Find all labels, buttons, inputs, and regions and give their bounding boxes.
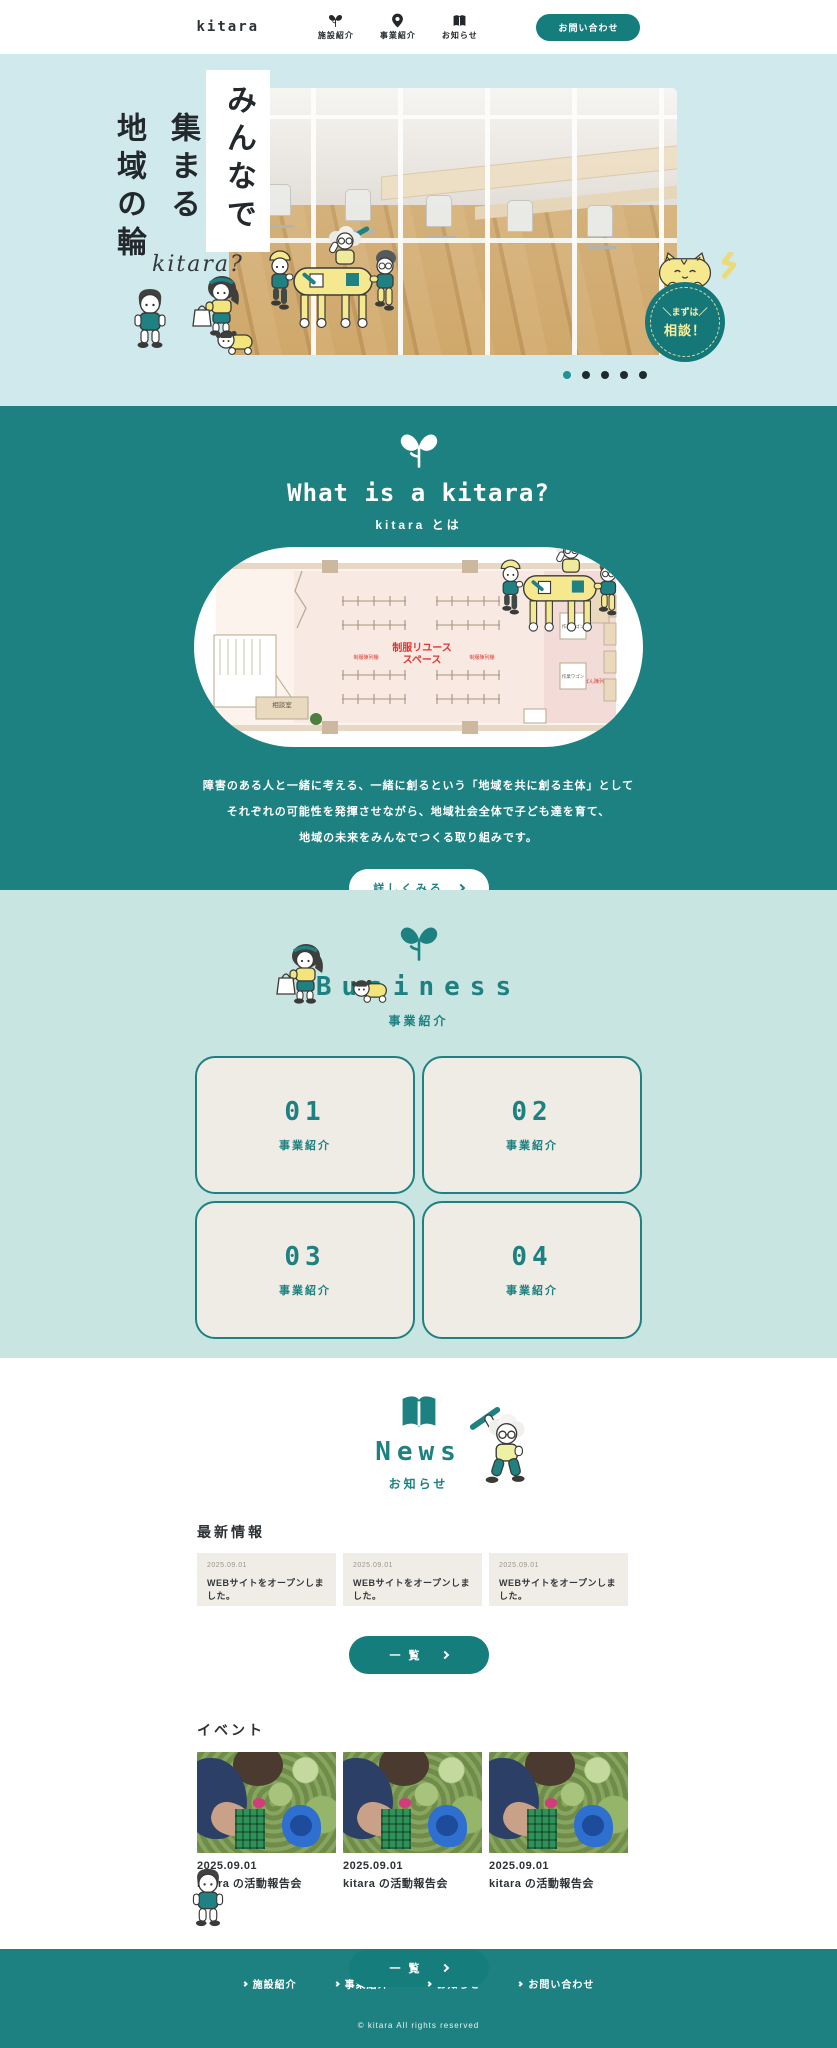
- business-card-number: 01: [284, 1097, 325, 1127]
- news-section: News お知らせ 最新情報 2025.09.01 WEBサイトをオープンしまし…: [0, 1358, 837, 1949]
- news-title: News: [0, 1437, 837, 1467]
- carousel-dots: [563, 371, 647, 379]
- nav-label: 事業紹介: [380, 30, 416, 41]
- photo-green-crate: [381, 1809, 412, 1849]
- about-description: 障害のある人と一緒に考える、一緒に創るという「地域を共に創る主体」として それぞ…: [0, 773, 837, 851]
- news-list-label: 一覧: [390, 1647, 428, 1663]
- carousel-dot-3[interactable]: [601, 371, 609, 379]
- nav-item-business[interactable]: 事業紹介: [380, 13, 416, 41]
- event-title: kitara の活動報告会: [343, 1875, 482, 1891]
- crawling-baby-character: [350, 975, 394, 1004]
- floorplan-room-label: 相談室: [272, 700, 292, 709]
- event-date: 2025.09.01: [489, 1860, 628, 1872]
- business-section: Business 事業紹介 01 事業紹介 02 事業紹介 03 事業紹介 04…: [0, 890, 837, 1358]
- floorplan-main-label-2: スペース: [403, 654, 442, 666]
- event-item[interactable]: 2025.09.01 kitara の活動報告会: [343, 1752, 482, 1891]
- events-row: 2025.09.01 kitara の活動報告会 2025.09.01 kita…: [197, 1752, 640, 1891]
- event-thumbnail-photo: [197, 1752, 336, 1853]
- about-subtitle: kitara とは: [0, 516, 837, 533]
- header: kitara 施設紹介 事業紹介 お知らせ お問い合わせ: [0, 0, 837, 54]
- about-description-line: 障害のある人と一緒に考える、一緒に創るという「地域を共に創る主体」として: [0, 773, 837, 799]
- business-card-number: 04: [511, 1242, 552, 1272]
- site-logo[interactable]: kitara: [197, 19, 260, 35]
- header-nav: 施設紹介 事業紹介 お知らせ: [318, 13, 478, 41]
- business-card-number: 03: [284, 1242, 325, 1272]
- hero-catch-line-2: 集まる: [160, 112, 204, 226]
- girl-with-bag-character: [276, 942, 332, 1004]
- carousel-dot-2[interactable]: [582, 371, 590, 379]
- news-item-date: 2025.09.01: [207, 1562, 326, 1569]
- floorplan-rack-label: 制服陳列棚: [353, 654, 378, 661]
- photo-blue-bag: [428, 1805, 467, 1847]
- business-card-02[interactable]: 02 事業紹介: [422, 1056, 642, 1194]
- nav-item-facility[interactable]: 施設紹介: [318, 13, 354, 41]
- carousel-dot-5[interactable]: [639, 371, 647, 379]
- photo-blue-bag: [282, 1805, 321, 1847]
- photo-green-crate: [527, 1809, 558, 1849]
- consult-badge[interactable]: ＼まずは／ 相談！: [645, 282, 725, 362]
- news-item[interactable]: 2025.09.01 WEBサイトをオープンしました。: [343, 1553, 482, 1606]
- event-thumbnail-photo: [489, 1752, 628, 1853]
- news-item-date: 2025.09.01: [353, 1562, 472, 1569]
- kids-at-table-characters: [490, 547, 625, 639]
- news-item[interactable]: 2025.09.01 WEBサイトをオープンしました。: [197, 1553, 336, 1606]
- crawling-baby-character: [214, 326, 260, 356]
- floorplan-panel: 制服リユース スペース 制服陳列棚 制服陳列棚 カウンター かばん陳列棚 作業ワ…: [194, 547, 643, 747]
- news-item[interactable]: 2025.09.01 WEBサイトをオープンしました。: [489, 1553, 628, 1606]
- news-item-text: WEBサイトをオープンしました。: [499, 1576, 618, 1602]
- nav-label: お知らせ: [442, 30, 478, 41]
- event-item[interactable]: 2025.09.01 kitara の活動報告会: [489, 1752, 628, 1891]
- latest-news-row: 2025.09.01 WEBサイトをオープンしました。 2025.09.01 W…: [197, 1553, 640, 1606]
- event-title: kitara の活動報告会: [489, 1875, 628, 1891]
- event-thumbnail-photo: [343, 1752, 482, 1853]
- badge-bottom-text: 相談！: [664, 320, 706, 339]
- events-heading: イベント: [197, 1720, 640, 1740]
- photo-pruner: [545, 1798, 558, 1807]
- about-description-line: 地域の未来をみんなでつくる取り組みです。: [0, 825, 837, 851]
- business-title: Business: [0, 972, 837, 1002]
- floorplan-rack-label: 制服陳列棚: [469, 654, 494, 661]
- nav-label: 施設紹介: [318, 30, 354, 41]
- business-card-label: 事業紹介: [279, 1137, 331, 1153]
- walking-boy-character: [186, 1866, 230, 1928]
- business-card-04[interactable]: 04 事業紹介: [422, 1201, 642, 1339]
- news-item-date: 2025.09.01: [499, 1562, 618, 1569]
- business-card-03[interactable]: 03 事業紹介: [195, 1201, 415, 1339]
- sprout-heart-icon: [398, 430, 440, 470]
- kids-at-table-characters: [258, 224, 403, 336]
- photo-pruner: [253, 1798, 266, 1807]
- photo-pruner: [399, 1798, 412, 1807]
- business-card-number: 02: [511, 1097, 552, 1127]
- chevron-right-icon: [440, 1964, 448, 1972]
- page: kitara 施設紹介 事業紹介 お知らせ お問い合わせ: [0, 0, 837, 2048]
- jumping-grandpa-character: [452, 1398, 532, 1484]
- business-card-label: 事業紹介: [506, 1137, 558, 1153]
- book-icon: [397, 1392, 441, 1430]
- business-subtitle: 事業紹介: [0, 1012, 837, 1029]
- news-subtitle: お知らせ: [0, 1475, 837, 1492]
- map-pin-icon: [390, 13, 405, 28]
- events-list-button[interactable]: 一覧: [349, 1949, 489, 1987]
- sprout-heart-icon: [398, 923, 440, 963]
- carousel-dot-4[interactable]: [620, 371, 628, 379]
- about-description-line: それぞれの可能性を発揮させながら、地域社会全体で子ども達を育て、: [0, 799, 837, 825]
- news-item-text: WEBサイトをオープンしました。: [207, 1576, 326, 1602]
- business-card-01[interactable]: 01 事業紹介: [195, 1056, 415, 1194]
- hero-section: みんなで 集まる 地域の輪 kitara? ＼まずは／ 相談！: [0, 54, 837, 406]
- news-item-text: WEBサイトをオープンしました。: [353, 1576, 472, 1602]
- news-list-button[interactable]: 一覧: [349, 1636, 489, 1674]
- badge-top-text: ＼まずは／: [662, 305, 707, 318]
- walking-boy-character: [128, 286, 172, 350]
- hero-catch-line-3: 地域の輪: [106, 112, 150, 264]
- about-title: What is a kitara?: [0, 479, 837, 507]
- contact-button[interactable]: お問い合わせ: [536, 14, 640, 41]
- photo-blue-bag: [574, 1805, 613, 1847]
- copyright-text: © kitara All rights reserved: [0, 2021, 837, 2030]
- photo-green-crate: [235, 1809, 266, 1849]
- floorplan-main-label-1: 制服リユース: [392, 641, 452, 654]
- latest-news-heading: 最新情報: [197, 1522, 640, 1542]
- zigzag-spark-icon: [722, 252, 736, 280]
- floorplan-wagon-label: 作業ワゴン: [562, 673, 585, 680]
- event-date: 2025.09.01: [343, 1860, 482, 1872]
- sprout-heart-icon: [328, 13, 343, 28]
- business-characters: [276, 942, 394, 1009]
- events-list-label: 一覧: [390, 1960, 428, 1976]
- about-section: What is a kitara? kitara とは: [0, 406, 837, 890]
- business-card-grid: 01 事業紹介 02 事業紹介 03 事業紹介 04 事業紹介: [195, 1056, 642, 1339]
- chevron-right-icon: [440, 1651, 448, 1659]
- nav-item-news[interactable]: お知らせ: [442, 13, 478, 41]
- business-card-label: 事業紹介: [279, 1282, 331, 1298]
- business-card-label: 事業紹介: [506, 1282, 558, 1298]
- carousel-dot-1[interactable]: [563, 371, 571, 379]
- book-icon: [452, 13, 467, 28]
